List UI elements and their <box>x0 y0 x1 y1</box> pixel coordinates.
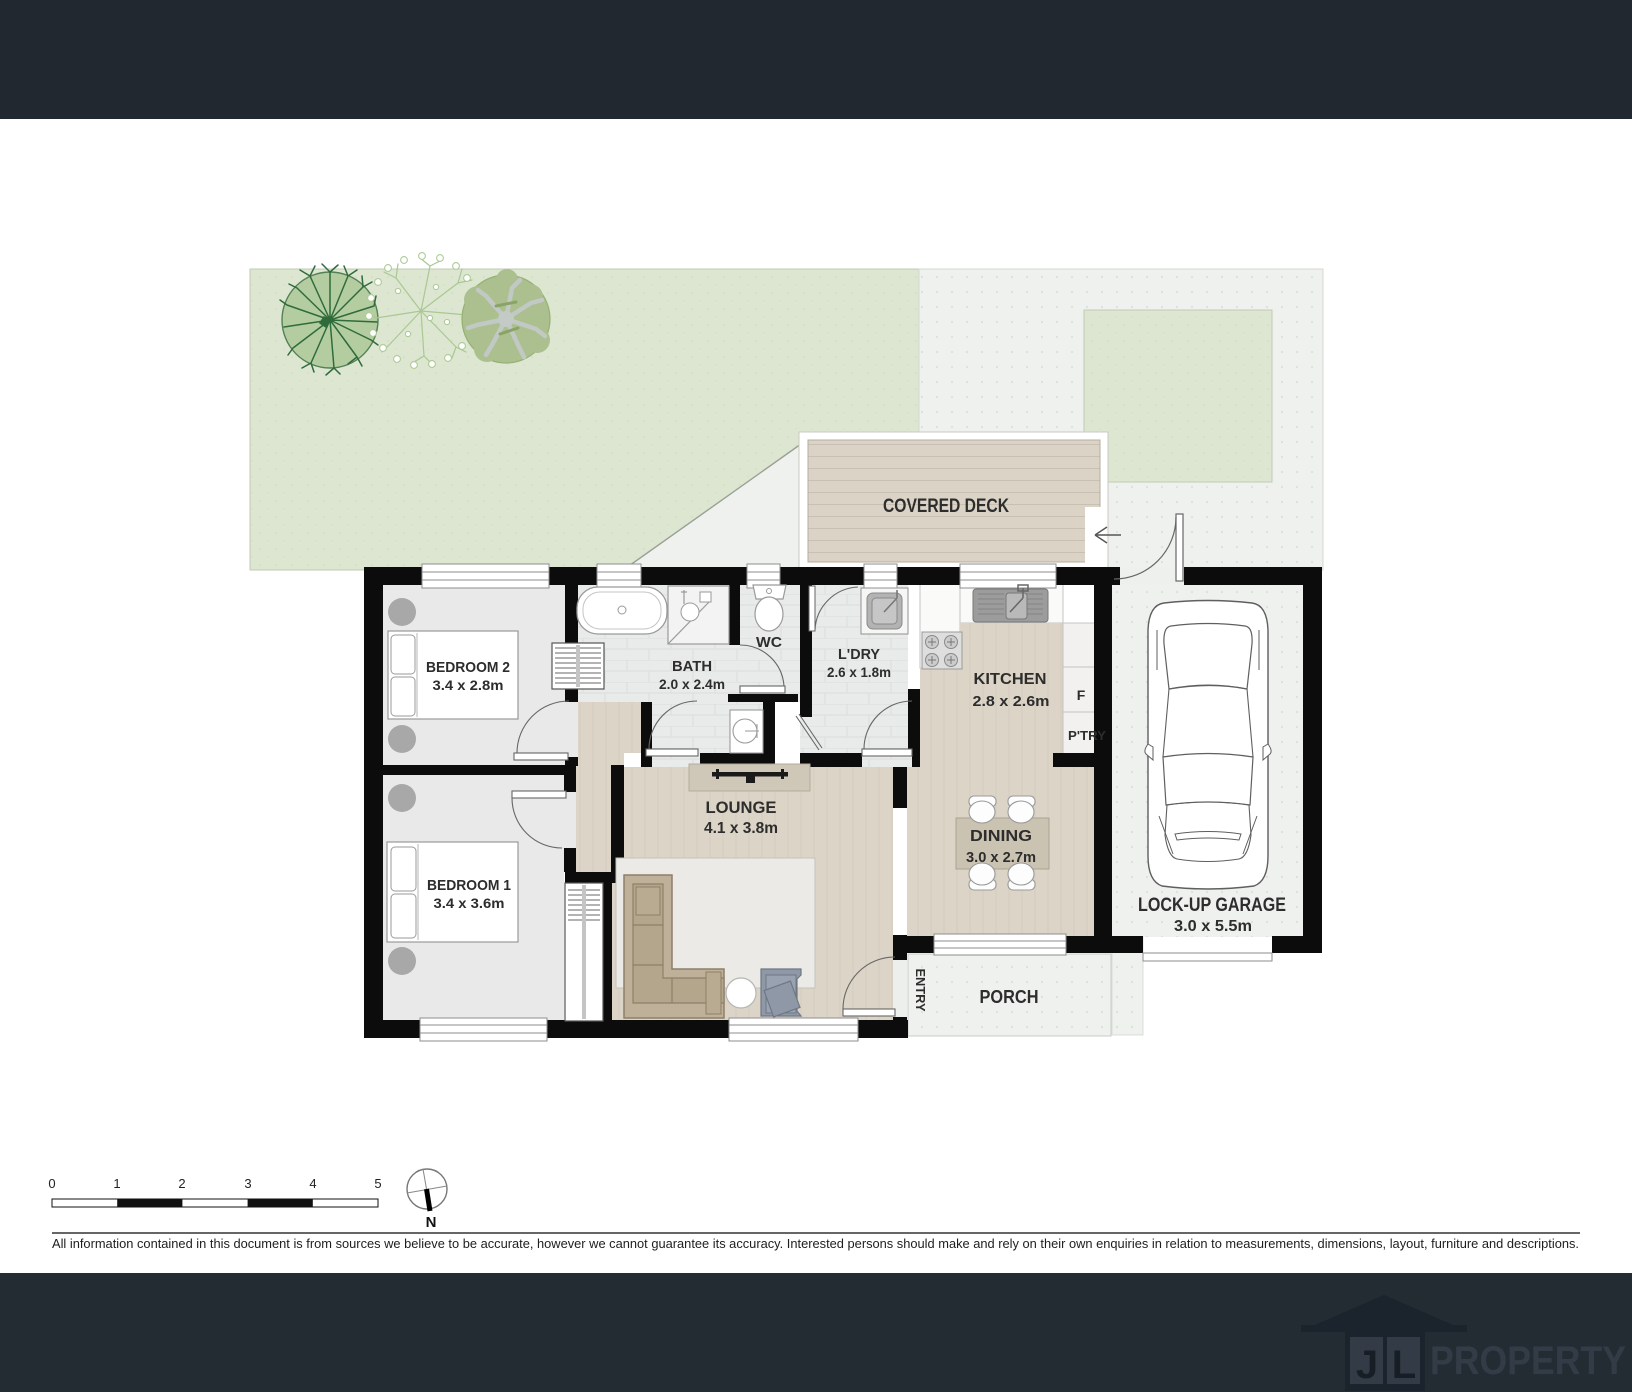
svg-text:DINING: DINING <box>970 828 1032 845</box>
svg-text:3: 3 <box>244 1176 251 1191</box>
svg-text:3.0 x 5.5m: 3.0 x 5.5m <box>1174 918 1252 935</box>
svg-text:BATH: BATH <box>672 658 712 675</box>
svg-text:ENTRY: ENTRY <box>913 969 927 1013</box>
svg-text:BEDROOM 1: BEDROOM 1 <box>427 877 511 894</box>
svg-text:2.0 x 2.4m: 2.0 x 2.4m <box>659 676 725 692</box>
svg-text:0: 0 <box>48 1176 55 1191</box>
svg-text:PROPERTY: PROPERTY <box>1430 1339 1626 1383</box>
svg-text:COVERED DECK: COVERED DECK <box>883 496 1009 517</box>
svg-text:KITCHEN: KITCHEN <box>974 671 1047 688</box>
svg-text:PORCH: PORCH <box>980 987 1039 1007</box>
svg-text:LOUNGE: LOUNGE <box>706 798 777 817</box>
svg-text:L'DRY: L'DRY <box>838 646 880 663</box>
svg-text:All information contained in t: All information contained in this docume… <box>52 1237 1579 1251</box>
svg-text:P'TRY: P'TRY <box>1068 729 1107 743</box>
svg-text:BEDROOM 2: BEDROOM 2 <box>426 659 510 676</box>
svg-text:4: 4 <box>309 1176 316 1191</box>
svg-text:N: N <box>426 1214 437 1231</box>
svg-text:5: 5 <box>374 1176 381 1191</box>
svg-text:F: F <box>1077 687 1086 703</box>
svg-text:4.1 x 3.8m: 4.1 x 3.8m <box>704 820 778 837</box>
svg-text:3.4 x 3.6m: 3.4 x 3.6m <box>434 895 505 911</box>
svg-text:2: 2 <box>178 1176 185 1191</box>
svg-text:3.0 x 2.7m: 3.0 x 2.7m <box>966 849 1036 866</box>
svg-text:LOCK-UP GARAGE: LOCK-UP GARAGE <box>1138 895 1286 916</box>
svg-text:L: L <box>1392 1343 1416 1387</box>
svg-text:1: 1 <box>113 1176 120 1191</box>
svg-text:2.8 x 2.6m: 2.8 x 2.6m <box>973 693 1050 710</box>
svg-text:J: J <box>1356 1343 1378 1387</box>
svg-text:WC: WC <box>756 634 782 651</box>
svg-text:2.6 x 1.8m: 2.6 x 1.8m <box>827 664 891 680</box>
svg-text:3.4 x 2.8m: 3.4 x 2.8m <box>433 677 504 693</box>
